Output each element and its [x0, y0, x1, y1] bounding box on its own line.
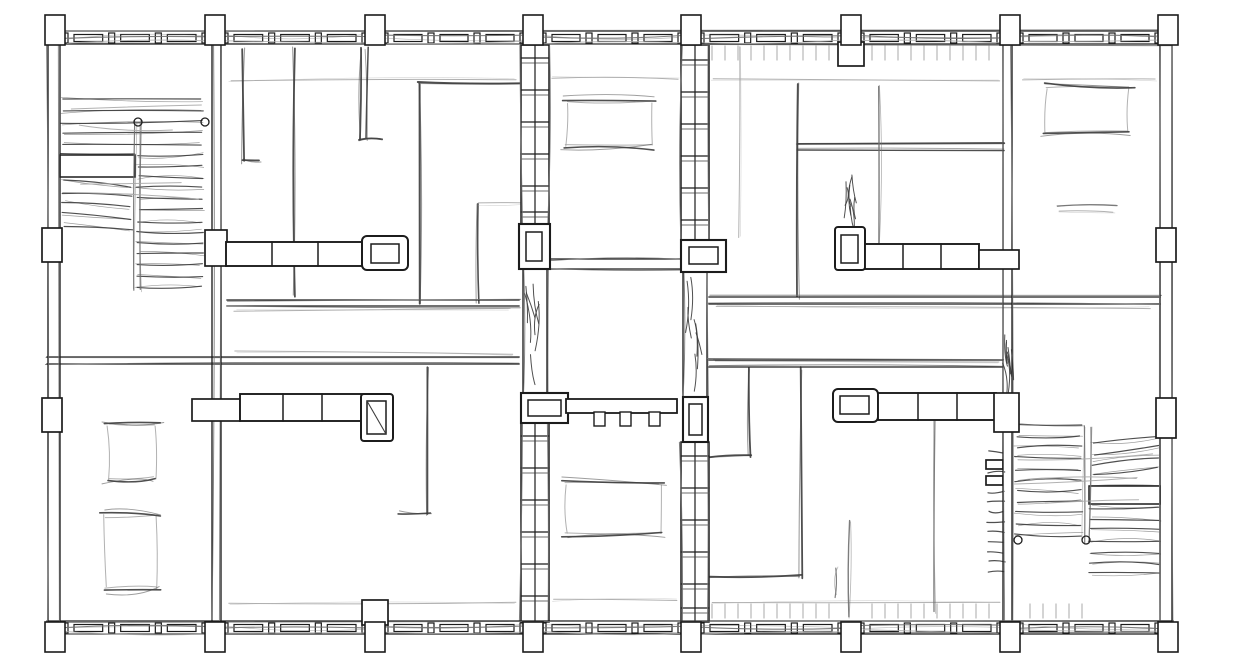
- desk-dashes-ne-2: [1059, 211, 1115, 213]
- partition-a2: [242, 159, 261, 162]
- left-stair-rail-2: [139, 120, 141, 292]
- glazed-wall-nw: [520, 45, 550, 224]
- counter-nw: [226, 242, 366, 266]
- hall-door-frame-nw: [519, 224, 550, 269]
- facade-ticks-bottom-2: [872, 604, 989, 618]
- hall-bench-comb: [566, 399, 677, 426]
- hall-door-frame-sw: [521, 393, 568, 423]
- hall-west-wall-inner: [547, 267, 548, 393]
- counter-nw-bracket: [205, 230, 227, 266]
- beam-guide-n-hallroom: [552, 77, 679, 80]
- beam-guide-nw: [229, 78, 516, 82]
- beam-guide-far-ne: [1023, 79, 1157, 81]
- radiator-box-2: [986, 476, 1003, 485]
- partition-f2: [797, 148, 1004, 151]
- beam-guide-se: [712, 601, 1000, 604]
- partition-l1: [426, 367, 428, 515]
- spine-wall-east-inner: [1011, 45, 1014, 622]
- partition-c2: [365, 47, 368, 140]
- partition-e: [797, 83, 800, 299]
- counter-se-sink: [833, 389, 878, 422]
- corridor-stroke-west-1: [234, 308, 510, 311]
- corridor-north-wall-west-1: [227, 299, 521, 301]
- table-southwest-room-1: [102, 422, 164, 484]
- left-stair-newel-2: [201, 118, 209, 126]
- right-stair-left-treads: [1013, 423, 1083, 537]
- floor-plan-page: [0, 0, 1240, 664]
- partition-i2: [709, 575, 802, 578]
- corridor-north-wall-east-1: [709, 295, 1162, 297]
- radiator-box-1: [986, 460, 1003, 469]
- corridor-south-wall-west-1: [46, 357, 519, 358]
- hall-door-frame-se: [683, 397, 708, 442]
- counter-se: [878, 393, 996, 420]
- counter-nw-sink: [362, 236, 408, 270]
- exterior-right-wall-inner: [1159, 31, 1160, 636]
- floor-plan-drawing: [0, 0, 1240, 664]
- partition-d3: [476, 204, 479, 303]
- hall-door-frame-ne: [681, 240, 726, 272]
- partition-g: [879, 85, 882, 245]
- left-stair-lower-left-treads: [62, 180, 134, 231]
- right-stair-lower-treads: [1088, 505, 1161, 576]
- partition-d2: [419, 84, 421, 304]
- counter-se-bracket: [994, 393, 1019, 432]
- exterior-left-wall-outer: [46, 31, 48, 634]
- exterior-right-wall-outer: [1172, 31, 1173, 636]
- corridor-south-wall-east-1: [707, 359, 1003, 361]
- beam-guide-ne: [711, 79, 1000, 81]
- glazed-wall-sw: [519, 423, 549, 622]
- partition-c3: [359, 138, 382, 140]
- table-southwest-room-2: [100, 509, 161, 595]
- counter-sw-sink: [361, 394, 393, 441]
- desk-dashes-ne-1: [1057, 204, 1117, 206]
- corridor-stroke-east-1: [716, 305, 1150, 309]
- counter-ne: [865, 244, 979, 269]
- partition-f1: [796, 143, 1004, 145]
- left-stair-landing: [60, 154, 135, 178]
- partition-c1: [359, 48, 362, 140]
- left-wall-pilaster-1: [42, 228, 62, 262]
- facade-ticks-top-2: [872, 46, 989, 60]
- glazed-wall-ne: [680, 43, 709, 241]
- glazed-wall-se: [679, 441, 709, 622]
- sketch-stroke-room-ne: [739, 47, 741, 238]
- hall-east-wall-hatch: [686, 277, 702, 391]
- table-northeast-room: [1041, 83, 1135, 136]
- partition-j2: [834, 567, 838, 598]
- right-stair-skew-treads: [1091, 437, 1160, 475]
- spine-wall-west-inner: [219, 44, 221, 621]
- counter-sw-bracket: [192, 399, 240, 421]
- left-stair-rail-1: [133, 121, 137, 290]
- right-stair-rail-1: [1082, 426, 1085, 543]
- counter-ne-bracket: [979, 250, 1019, 269]
- partition-d1: [418, 82, 532, 84]
- partition-h1: [747, 368, 750, 457]
- left-stair-right-treads: [135, 153, 204, 289]
- hall-north-wall-outer: [549, 258, 681, 261]
- corridor-south-wall-east-2: [709, 365, 1003, 367]
- facade-ticks-bottom-3: [1030, 604, 1082, 618]
- partition-k: [933, 418, 935, 613]
- partition-j1: [848, 521, 851, 619]
- top-window-band: [62, 33, 1161, 44]
- exterior-left-wall-inner: [58, 31, 60, 635]
- table-south-hall-room: [562, 477, 667, 538]
- facade-ticks-top-1: [712, 46, 829, 60]
- right-wall-pilaster-2: [1156, 398, 1176, 438]
- partition-a1: [242, 48, 245, 164]
- facade-ticks-bottom-1: [712, 604, 829, 618]
- right-wall-pilaster-1: [1156, 228, 1176, 262]
- hall-north-wall-inner: [549, 269, 681, 271]
- right-stair-newel-1: [1014, 536, 1022, 544]
- corridor-north-wall-west-2: [227, 306, 520, 308]
- hall-east-wall-inner: [707, 271, 708, 399]
- beam-guide-s-hallroom: [553, 598, 677, 601]
- spine-wall-east-outer: [1003, 45, 1005, 621]
- partition-h2: [710, 455, 751, 457]
- hall-east-wall-outer: [683, 271, 685, 398]
- hall-west-wall-hatch: [525, 284, 539, 385]
- counter-ne-sink: [835, 227, 865, 270]
- corridor-north-wall-east-2: [708, 302, 1160, 304]
- left-wall-pilaster-2: [42, 398, 62, 432]
- hall-west-wall-outer: [523, 268, 525, 395]
- corridor-south-wall-west-2: [45, 362, 519, 364]
- counter-sw: [240, 394, 365, 421]
- corridor-stroke-west-2: [235, 351, 513, 355]
- spine-wall-west-outer: [212, 44, 214, 621]
- partition-i1: [799, 367, 802, 578]
- left-stair-upper-treads: [61, 97, 203, 145]
- table-north-hall-room: [561, 95, 656, 151]
